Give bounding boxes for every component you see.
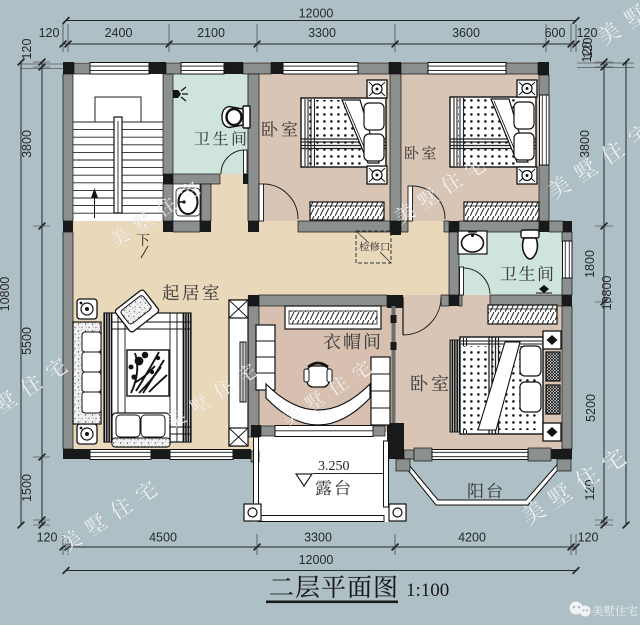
svg-text:5200: 5200 [584,394,598,422]
svg-text:1800: 1800 [583,250,597,278]
svg-text:2400: 2400 [105,26,133,40]
svg-text:3300: 3300 [304,531,332,545]
svg-text:12000: 12000 [299,7,334,21]
svg-text:3.250: 3.250 [318,459,350,474]
svg-text:120: 120 [578,531,599,545]
svg-text:1500: 1500 [20,474,34,502]
svg-text:120: 120 [37,531,58,545]
svg-text:5500: 5500 [20,327,34,355]
svg-text:3800: 3800 [578,130,592,158]
svg-text:3600: 3600 [452,26,480,40]
svg-text:4200: 4200 [458,531,486,545]
svg-text:120: 120 [581,38,595,59]
svg-text:3800: 3800 [20,130,34,158]
svg-text:12000: 12000 [299,553,334,567]
svg-text:10800: 10800 [0,277,12,312]
svg-text:120: 120 [20,39,34,60]
svg-text:600: 600 [545,26,566,40]
svg-text:10800: 10800 [600,276,614,311]
svg-text:4500: 4500 [149,531,177,545]
svg-text:3300: 3300 [308,26,336,40]
svg-text:1:100: 1:100 [406,580,449,601]
svg-text:2100: 2100 [197,26,225,40]
svg-text:120: 120 [39,26,60,40]
